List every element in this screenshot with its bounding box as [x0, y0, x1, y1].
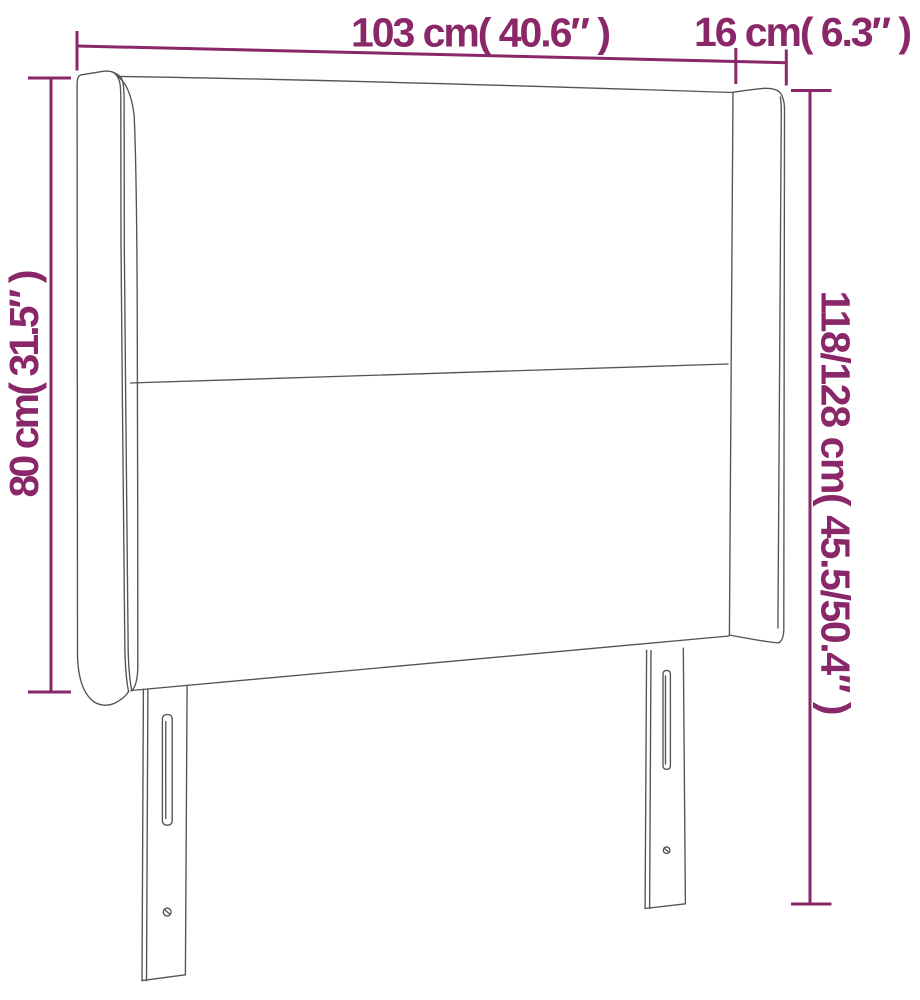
- svg-text:118/128 cm( 45.5/50.4″ ): 118/128 cm( 45.5/50.4″ ): [813, 291, 859, 716]
- svg-text:80 cm( 31.5″ ): 80 cm( 31.5″ ): [1, 270, 47, 498]
- svg-text:103 cm( 40.6″ ): 103 cm( 40.6″ ): [351, 10, 611, 56]
- svg-text:16 cm( 6.3″ ): 16 cm( 6.3″ ): [694, 9, 912, 55]
